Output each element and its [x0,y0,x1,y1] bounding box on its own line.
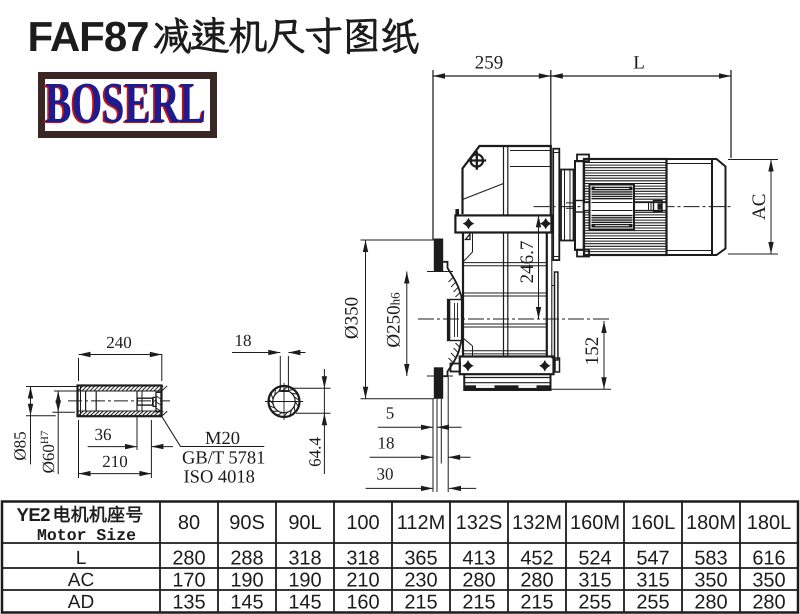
svg-text:112M: 112M [397,512,446,534]
svg-text:M20: M20 [205,429,240,449]
svg-text:255: 255 [636,592,669,614]
svg-text:215: 215 [520,592,553,614]
svg-text:L: L [633,53,645,74]
svg-text:288: 288 [230,548,263,570]
svg-text:452: 452 [520,548,553,570]
svg-text:Ø85: Ø85 [11,431,30,460]
svg-text:36: 36 [95,425,112,444]
svg-text:365: 365 [404,548,437,570]
svg-text:230: 230 [404,570,437,592]
svg-text:Ø60H7: Ø60H7 [39,430,58,473]
svg-text:160: 160 [346,592,379,614]
svg-text:413: 413 [462,548,495,570]
svg-text:318: 318 [288,548,321,570]
svg-text:80: 80 [178,512,200,534]
svg-text:132M: 132M [512,512,562,534]
svg-text:AD: AD [68,592,94,613]
svg-text:240: 240 [106,333,132,352]
svg-text:132S: 132S [456,512,503,534]
svg-text:FAF87: FAF87 [28,13,149,60]
svg-text:YE2: YE2 [17,504,51,525]
svg-text:583: 583 [694,548,727,570]
svg-text:315: 315 [578,570,611,592]
svg-text:18: 18 [235,331,252,350]
svg-text:190: 190 [230,570,263,592]
svg-text:180L: 180L [747,512,792,534]
svg-text:Ø350: Ø350 [342,297,363,339]
svg-text:5: 5 [386,404,395,423]
svg-text:259: 259 [475,53,504,74]
svg-text:L: L [76,548,87,569]
svg-text:64.4: 64.4 [306,437,325,467]
svg-text:280: 280 [462,570,495,592]
svg-text:18: 18 [378,434,395,453]
svg-text:100: 100 [346,512,379,534]
svg-text:524: 524 [578,548,611,570]
svg-text:280: 280 [520,570,553,592]
svg-text:190: 190 [288,570,321,592]
svg-text:AC: AC [68,570,94,591]
svg-text:350: 350 [694,570,727,592]
svg-text:616: 616 [752,548,785,570]
svg-text:90L: 90L [288,512,321,534]
svg-text:280: 280 [694,592,727,614]
svg-text:135: 135 [172,592,205,614]
svg-text:160M: 160M [570,512,620,534]
svg-text:215: 215 [462,592,495,614]
svg-text:280: 280 [752,592,785,614]
svg-text:AC: AC [749,194,770,220]
svg-text:BOSERL: BOSERL [45,70,206,135]
svg-text:30: 30 [377,465,394,484]
svg-text:350: 350 [752,570,785,592]
svg-text:Motor Size: Motor Size [37,526,136,545]
svg-text:215: 215 [404,592,437,614]
svg-text:280: 280 [172,548,205,570]
svg-text:170: 170 [172,570,205,592]
svg-text:210: 210 [346,570,379,592]
svg-text:255: 255 [578,592,611,614]
svg-text:90S: 90S [229,512,265,534]
svg-text:160L: 160L [631,512,676,534]
svg-text:Ø250h6: Ø250h6 [384,292,405,348]
svg-text:315: 315 [636,570,669,592]
svg-text:246.7: 246.7 [517,241,538,284]
svg-text:180M: 180M [686,512,736,534]
svg-text:ISO 4018: ISO 4018 [184,467,255,487]
svg-text:GB/T 5781: GB/T 5781 [182,448,265,468]
svg-text:145: 145 [288,592,321,614]
svg-text:210: 210 [102,452,128,471]
svg-text:152: 152 [582,337,603,366]
svg-text:318: 318 [346,548,379,570]
svg-text:145: 145 [230,592,263,614]
svg-text:547: 547 [636,548,669,570]
